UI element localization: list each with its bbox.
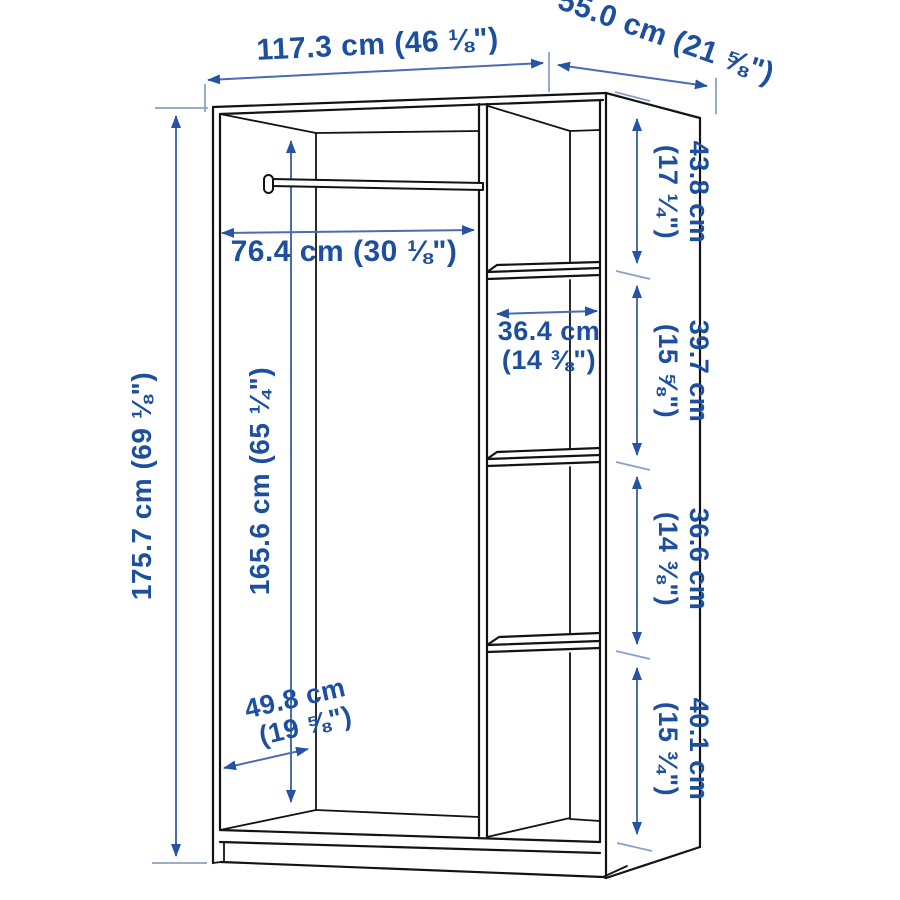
side-segment-1-label: 39.7 cm (15 ⅝") bbox=[653, 320, 714, 423]
side-tick-3 bbox=[616, 651, 650, 659]
width-label: 117.3 cm (46 ⅛") bbox=[256, 22, 500, 67]
dimension-annotations bbox=[152, 52, 716, 863]
dim-arrow-shelf-width bbox=[497, 311, 597, 314]
side-tick-4 bbox=[617, 843, 652, 851]
side-segment-3-imperial: (15 ¾") bbox=[653, 702, 683, 796]
side-segment-2-label: 36.6 cm (14 ⅜") bbox=[653, 508, 714, 611]
shelf-width-imperial: (14 ⅜") bbox=[502, 345, 596, 375]
interior-depth-label: 49.8 cm (19 ⅝") bbox=[242, 672, 355, 753]
cabinet-frame bbox=[213, 93, 700, 878]
height-label: 175.7 cm (69 ⅛") bbox=[126, 372, 157, 600]
side-segment-0-imperial: (17 ¼") bbox=[653, 145, 683, 239]
side-segment-0-value: 43.8 cm bbox=[684, 141, 714, 244]
diagram-canvas: 117.3 cm (46 ⅛") 55.0 cm (21 ⅝") 175.7 c… bbox=[0, 0, 900, 900]
side-tick-1 bbox=[616, 271, 650, 279]
dim-arrow-rod-width bbox=[222, 230, 474, 233]
wardrobe-dimension-diagram: 117.3 cm (46 ⅛") 55.0 cm (21 ⅝") 175.7 c… bbox=[0, 0, 900, 900]
shelf-top bbox=[487, 262, 600, 279]
side-segment-1-value: 39.7 cm bbox=[684, 320, 714, 423]
side-segment-1-imperial: (15 ⅝") bbox=[653, 324, 683, 418]
dim-arrow-interior-depth bbox=[224, 749, 308, 768]
base-plinth bbox=[213, 830, 627, 878]
shelf-lower bbox=[487, 633, 600, 652]
wardrobe-line-art bbox=[213, 93, 700, 878]
side-segment-3-value: 40.1 cm bbox=[684, 698, 714, 801]
side-tick-2 bbox=[616, 462, 650, 470]
clothes-rail bbox=[264, 175, 483, 193]
interior-height-label: 165.6 cm (65 ¼") bbox=[244, 367, 275, 595]
shelf-width-value: 36.4 cm bbox=[498, 316, 601, 346]
depth-label: 55.0 cm (21 ⅝") bbox=[554, 0, 779, 90]
dimension-labels: 117.3 cm (46 ⅛") 55.0 cm (21 ⅝") 175.7 c… bbox=[126, 0, 779, 800]
side-segment-2-imperial: (14 ⅜") bbox=[653, 512, 683, 606]
side-segment-2-value: 36.6 cm bbox=[684, 508, 714, 611]
side-segment-0-label: 43.8 cm (17 ¼") bbox=[653, 141, 714, 244]
divider-panel bbox=[479, 104, 600, 838]
shelf-width-label: 36.4 cm (14 ⅜") bbox=[498, 316, 601, 375]
rod-width-label: 76.4 cm (30 ⅛") bbox=[231, 235, 458, 268]
dim-arrow-depth bbox=[558, 65, 707, 86]
shelf-middle bbox=[487, 448, 600, 466]
side-segment-3-label: 40.1 cm (15 ¾") bbox=[653, 698, 714, 801]
